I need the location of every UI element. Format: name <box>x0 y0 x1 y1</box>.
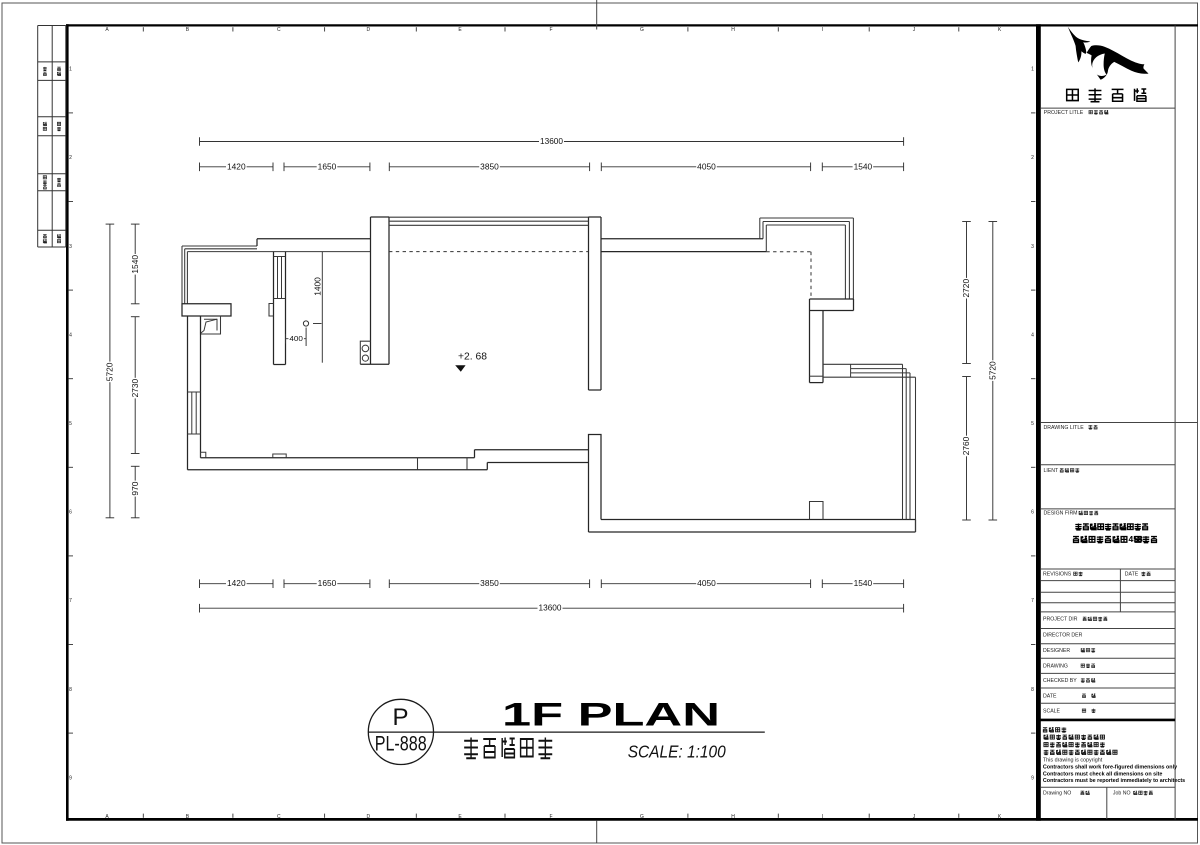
svg-text:DESIGN FIRM: DESIGN FIRM <box>1044 511 1078 517</box>
svg-text:1F PLAN: 1F PLAN <box>502 697 720 733</box>
svg-text:1540: 1540 <box>854 579 873 588</box>
svg-text:H: H <box>731 814 735 820</box>
svg-text:970: 970 <box>131 481 140 496</box>
svg-text:2: 2 <box>69 155 72 161</box>
svg-text:2720: 2720 <box>962 278 971 297</box>
svg-text:H: H <box>731 27 735 33</box>
svg-text:SCALE: 1:100: SCALE: 1:100 <box>628 742 726 762</box>
svg-text:Contractors shall work fore-fi: Contractors shall work fore-figured dime… <box>1043 764 1177 770</box>
svg-text:This drawing is copyright: This drawing is copyright <box>1043 757 1103 763</box>
svg-text:1650: 1650 <box>318 162 337 171</box>
svg-text:PROJECT LITLE: PROJECT LITLE <box>1044 110 1084 116</box>
svg-text:DESIGNER: DESIGNER <box>1043 648 1070 654</box>
svg-text:6: 6 <box>1031 510 1034 516</box>
svg-text:1400: 1400 <box>313 277 322 296</box>
svg-text:1: 1 <box>69 67 72 73</box>
svg-text:CHECKED BY: CHECKED BY <box>1043 678 1077 684</box>
svg-text:DIRECTOR DER: DIRECTOR DER <box>1043 633 1083 639</box>
svg-text:3850: 3850 <box>480 162 499 171</box>
svg-text:9: 9 <box>1031 775 1034 781</box>
svg-text:I: I <box>822 27 823 33</box>
svg-text:Job NO: Job NO <box>1113 791 1131 797</box>
svg-text:DATE: DATE <box>1125 571 1139 577</box>
svg-text:1: 1 <box>1031 67 1034 73</box>
svg-text:Contractors must check all dim: Contractors must check all dimensions on… <box>1043 772 1163 778</box>
svg-text:3: 3 <box>69 244 72 250</box>
svg-text:I: I <box>822 814 823 820</box>
svg-text:13600: 13600 <box>539 604 563 613</box>
svg-text:1650: 1650 <box>318 579 337 588</box>
svg-text:LIENT: LIENT <box>1044 468 1060 474</box>
svg-text:+2. 68: +2. 68 <box>458 350 487 362</box>
svg-text:F: F <box>549 814 552 820</box>
svg-text:7: 7 <box>1031 598 1034 604</box>
svg-text:5: 5 <box>69 421 72 427</box>
svg-text:Contractors must be reported i: Contractors must be reported immediately… <box>1043 778 1185 784</box>
svg-text:4050: 4050 <box>697 579 716 588</box>
svg-text:5: 5 <box>1031 421 1034 427</box>
svg-text:P: P <box>392 704 408 731</box>
svg-text:C: C <box>277 27 281 33</box>
svg-text:8: 8 <box>69 687 72 693</box>
svg-text:400: 400 <box>289 334 303 343</box>
svg-text:G: G <box>640 814 644 820</box>
svg-text:1420: 1420 <box>227 579 246 588</box>
svg-text:5720: 5720 <box>988 361 997 380</box>
svg-text:4050: 4050 <box>697 162 716 171</box>
svg-text:F: F <box>549 27 552 33</box>
svg-text:4: 4 <box>69 332 72 338</box>
svg-text:1540: 1540 <box>131 254 140 273</box>
svg-text:6: 6 <box>69 510 72 516</box>
svg-text:DRAWING LITLE: DRAWING LITLE <box>1044 425 1085 431</box>
svg-text:DRAWING: DRAWING <box>1043 663 1068 669</box>
svg-text:1540: 1540 <box>854 162 873 171</box>
svg-text:5720: 5720 <box>106 362 115 381</box>
svg-text:4: 4 <box>1031 332 1034 338</box>
svg-text:8: 8 <box>1031 687 1034 693</box>
svg-text:PL-888: PL-888 <box>375 731 427 755</box>
svg-text:G: G <box>640 27 644 33</box>
svg-text:2730: 2730 <box>131 378 140 397</box>
svg-text:3850: 3850 <box>480 579 499 588</box>
svg-text:DATE: DATE <box>1043 693 1057 699</box>
svg-text:PROJECT DIR: PROJECT DIR <box>1043 617 1078 623</box>
svg-text:Drawing NO: Drawing NO <box>1043 791 1071 797</box>
svg-text:7: 7 <box>69 598 72 604</box>
svg-text:2760: 2760 <box>962 436 971 455</box>
svg-text:2: 2 <box>1031 155 1034 161</box>
svg-text:1420: 1420 <box>227 162 246 171</box>
svg-text:D: D <box>366 27 370 33</box>
svg-text:9: 9 <box>69 775 72 781</box>
svg-text:C: C <box>277 814 281 820</box>
svg-text:SCALE: SCALE <box>1043 708 1061 714</box>
svg-text:3: 3 <box>1031 244 1034 250</box>
svg-text:REVISIONS: REVISIONS <box>1043 571 1072 577</box>
svg-text:D: D <box>366 814 370 820</box>
svg-text:13600: 13600 <box>540 137 564 146</box>
